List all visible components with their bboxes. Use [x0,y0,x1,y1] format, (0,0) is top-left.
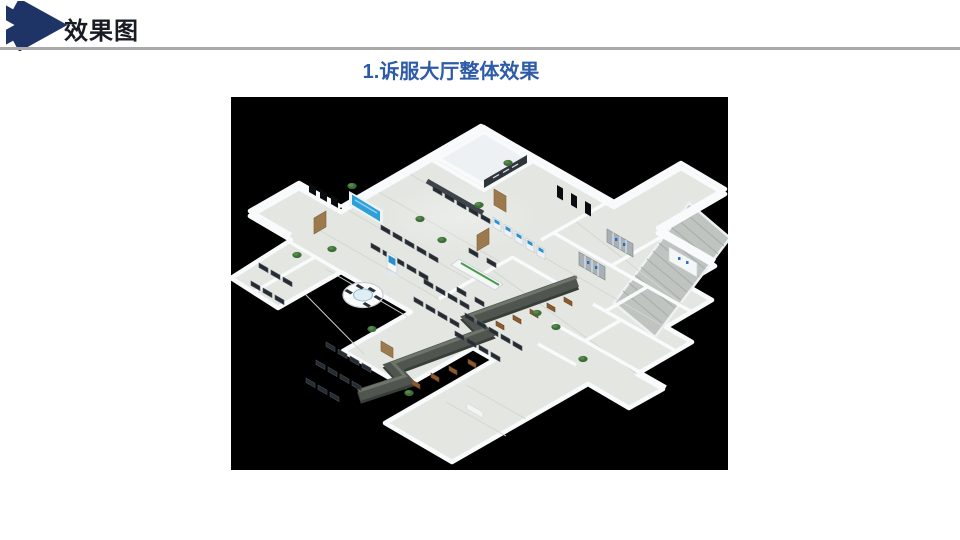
page-title: 效果图 [64,11,139,46]
header-divider [0,47,960,50]
slide: 效果图 1.诉服大厅整体效果 [0,0,960,540]
section-subtitle: 1.诉服大厅整体效果 [0,55,902,84]
floorplan-3d-svg [231,97,728,470]
floorplan-render-image [231,97,728,470]
round-desk [343,283,383,308]
